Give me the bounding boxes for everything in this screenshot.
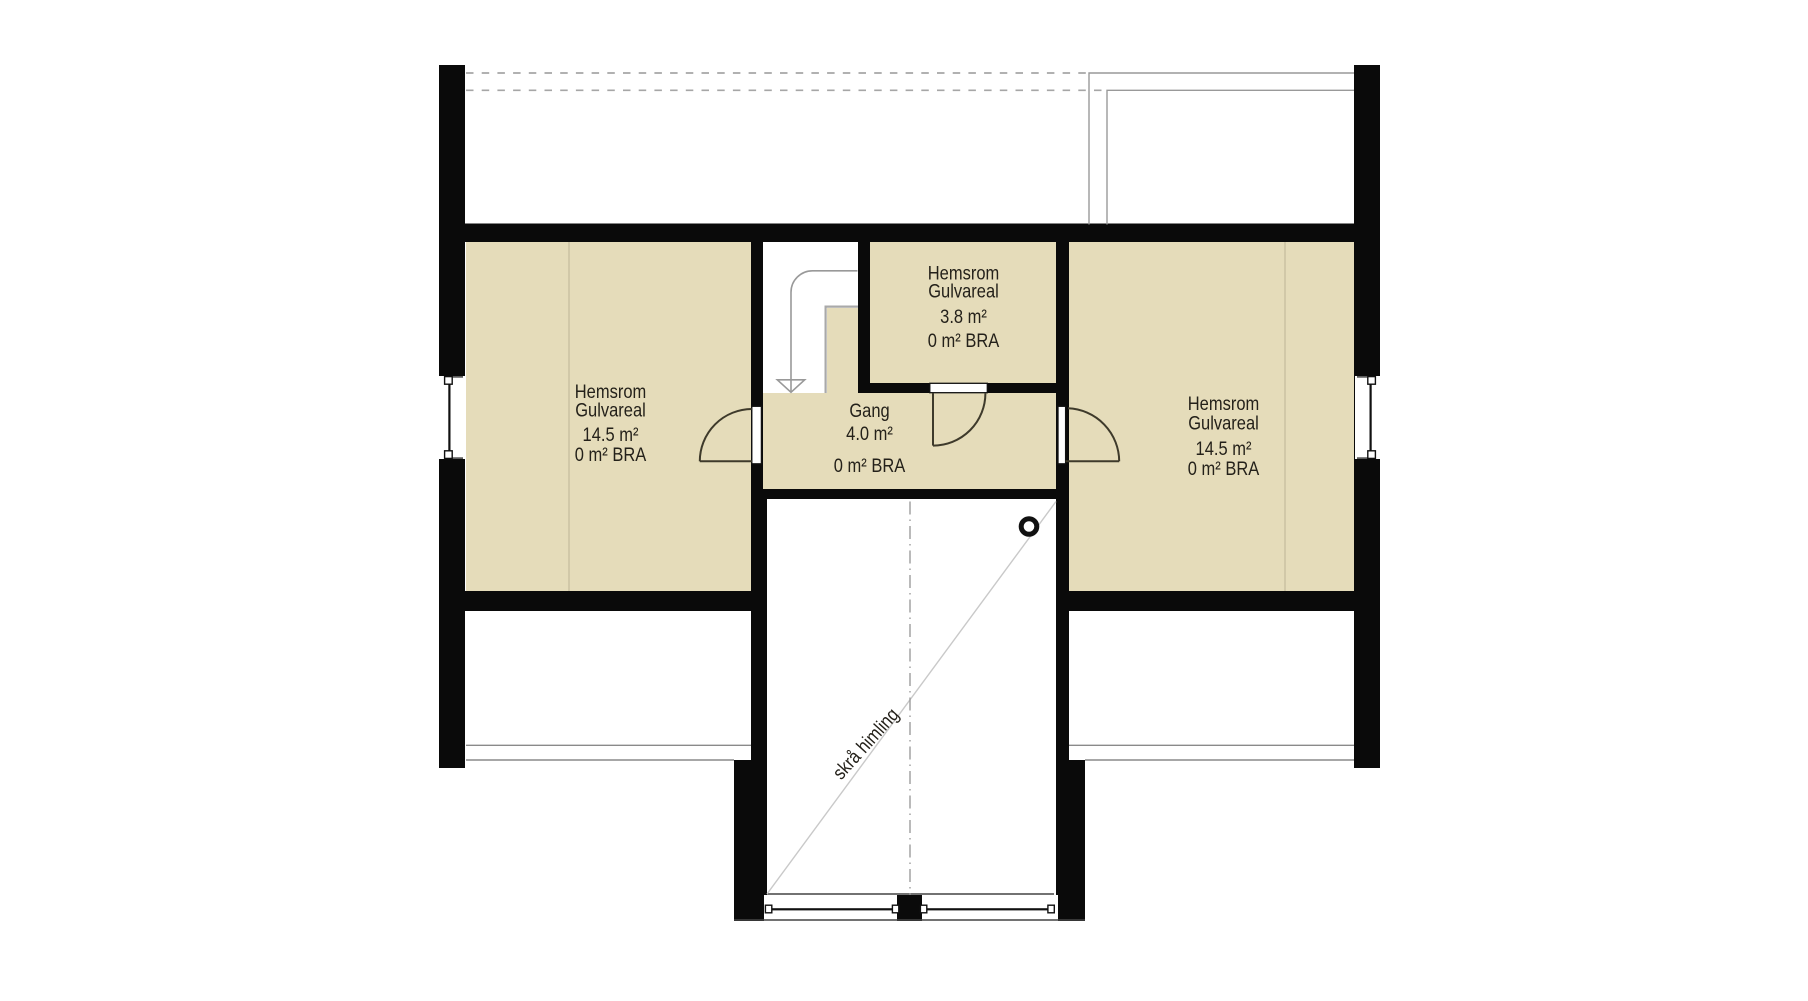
svg-text:4.0 m²: 4.0 m² — [846, 423, 893, 445]
svg-text:3.8 m²: 3.8 m² — [940, 306, 987, 328]
svg-text:Hemsrom: Hemsrom — [1188, 393, 1259, 415]
svg-text:0 m² BRA: 0 m² BRA — [834, 455, 905, 477]
svg-text:Gulvareal: Gulvareal — [575, 399, 646, 421]
svg-text:Gulvareal: Gulvareal — [1188, 412, 1259, 434]
svg-text:Gang: Gang — [849, 400, 889, 422]
svg-text:0 m² BRA: 0 m² BRA — [1188, 458, 1259, 480]
svg-text:0 m² BRA: 0 m² BRA — [575, 444, 646, 466]
svg-text:0 m² BRA: 0 m² BRA — [928, 330, 999, 352]
svg-text:skrå himling: skrå himling — [828, 704, 903, 784]
svg-text:Gulvareal: Gulvareal — [928, 280, 999, 302]
svg-text:14.5 m²: 14.5 m² — [1196, 438, 1252, 460]
svg-text:14.5 m²: 14.5 m² — [583, 424, 639, 446]
